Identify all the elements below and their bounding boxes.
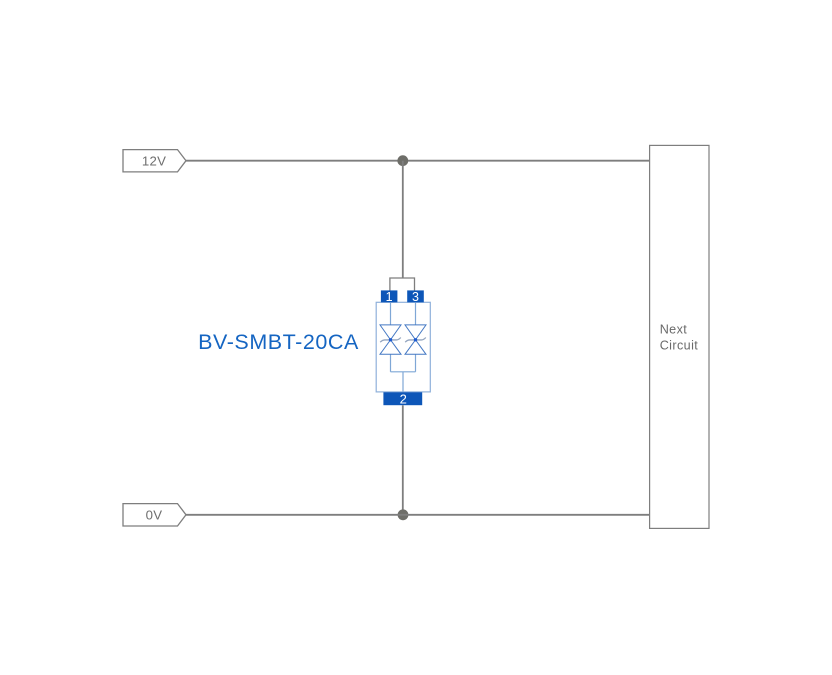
svg-text:1: 1 xyxy=(386,290,393,304)
svg-text:BV-SMBT-20CA: BV-SMBT-20CA xyxy=(198,330,359,354)
svg-text:12V: 12V xyxy=(142,154,166,169)
svg-text:Next: Next xyxy=(660,322,688,336)
svg-text:Circuit: Circuit xyxy=(660,339,699,353)
svg-text:3: 3 xyxy=(412,290,419,304)
svg-text:2: 2 xyxy=(400,391,407,406)
svg-text:0V: 0V xyxy=(146,508,163,523)
